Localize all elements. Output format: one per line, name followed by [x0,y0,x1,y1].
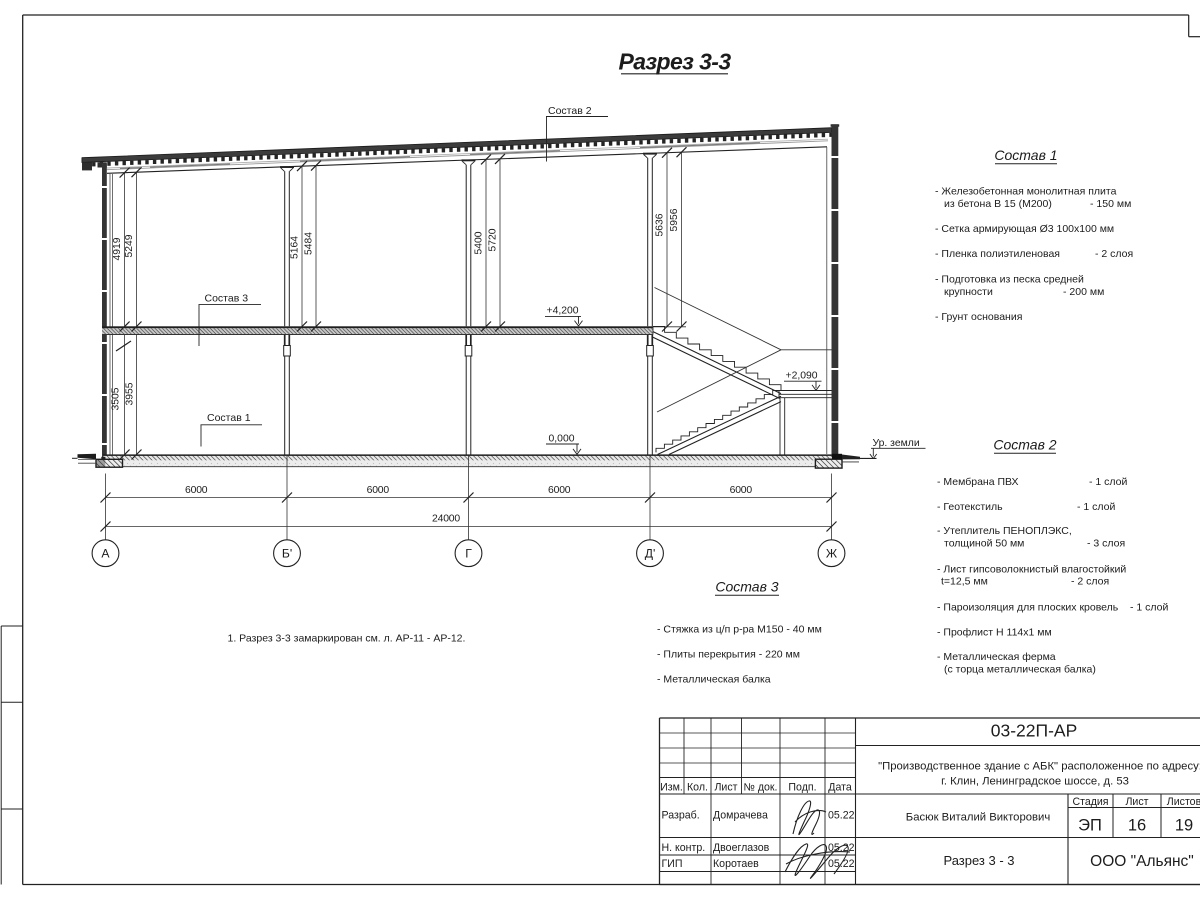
svg-text:Разрез 3 - 3: Разрез 3 - 3 [943,853,1014,868]
svg-text:- Профлист Н 114х1 мм: - Профлист Н 114х1 мм [937,627,1052,639]
svg-text:- Пленка полиэтиленовая: - Пленка полиэтиленовая [935,248,1060,260]
svg-text:+4,200: +4,200 [547,306,579,317]
svg-text:А: А [101,547,110,561]
svg-text:№ док.: № док. [744,782,778,794]
svg-text:- Грунт основания: - Грунт основания [935,311,1022,323]
svg-text:- 1 слой: - 1 слой [1089,476,1128,488]
svg-text:03-22П-АР: 03-22П-АР [991,721,1078,741]
svg-text:- Утеплитель ПЕНОПЛЭКС,: - Утеплитель ПЕНОПЛЭКС, [937,525,1072,537]
svg-text:5400: 5400 [473,231,484,254]
svg-text:Разрез 3-3: Разрез 3-3 [618,49,731,75]
svg-text:t=12,5 мм: t=12,5 мм [941,576,988,588]
svg-text:г. Клин, Ленинградское шоссе,: г. Клин, Ленинградское шоссе, д. 53 [941,776,1129,788]
svg-text:Б': Б' [282,547,292,561]
svg-text:1. Разрез 3-3 замаркирован см.: 1. Разрез 3-3 замаркирован см. л. АР-11 … [228,633,466,645]
svg-text:3505: 3505 [111,387,122,410]
svg-text:Ур. земли: Ур. земли [873,438,920,449]
svg-text:Состав 2: Состав 2 [548,105,592,117]
svg-text:ЭП: ЭП [1078,817,1102,835]
svg-text:Стадия: Стадия [1072,796,1108,808]
svg-text:крупности: крупности [944,286,993,298]
svg-text:- Подготовка из песка средней: - Подготовка из песка средней [935,274,1084,286]
svg-text:16: 16 [1128,817,1146,835]
svg-text:Состав 3: Состав 3 [715,579,778,595]
svg-text:Ж: Ж [826,547,838,561]
svg-text:0,000: 0,000 [549,433,575,444]
svg-text:- Металлическая балка: - Металлическая балка [657,674,771,686]
svg-text:Состав 3: Состав 3 [205,293,249,305]
svg-text:05.22: 05.22 [828,810,855,822]
svg-text:- 150 мм: - 150 мм [1090,198,1131,210]
svg-text:6000: 6000 [367,485,390,496]
svg-text:- 200 мм: - 200 мм [1063,286,1104,298]
svg-text:5720: 5720 [487,228,498,251]
svg-text:- 1 слой: - 1 слой [1077,501,1116,513]
svg-text:- Металлическая ферма: - Металлическая ферма [937,651,1056,663]
svg-text:- Железобетонная монолитная п: - Железобетонная монолитная плита [935,186,1117,198]
svg-text:24000: 24000 [432,514,460,525]
svg-text:Д': Д' [645,547,656,561]
svg-text:6000: 6000 [730,485,753,496]
svg-text:Состав 1: Состав 1 [207,412,251,424]
svg-text:Разраб.: Разраб. [662,810,700,822]
svg-text:Кол.: Кол. [687,782,708,794]
svg-text:Листов: Листов [1167,796,1200,808]
svg-text:6000: 6000 [548,485,571,496]
svg-text:5249: 5249 [124,234,135,257]
svg-text:- Геотекстиль: - Геотекстиль [937,501,1003,513]
svg-text:5636: 5636 [654,213,665,236]
svg-text:19: 19 [1175,817,1193,835]
svg-text:- 1 слой: - 1 слой [1130,602,1169,614]
svg-text:толщиной 50 мм: толщиной 50 мм [944,538,1024,550]
svg-text:3955: 3955 [125,382,136,405]
svg-text:Подп.: Подп. [788,782,816,794]
svg-text:ООО "Альянс": ООО "Альянс" [1090,853,1194,870]
svg-text:Состав 1: Состав 1 [994,147,1057,163]
svg-text:+2,090: +2,090 [786,371,818,382]
svg-text:- Сетка армирующая Ø3 100х100: - Сетка армирующая Ø3 100х100 мм [935,223,1114,235]
svg-text:6000: 6000 [185,485,208,496]
svg-text:Домрачева: Домрачева [713,810,768,822]
svg-text:- Мембрана ПВХ: - Мембрана ПВХ [937,476,1019,488]
svg-text:- 2 слоя: - 2 слоя [1071,576,1109,588]
svg-text:Дата: Дата [828,782,852,794]
svg-text:из бетона В 15 (М200): из бетона В 15 (М200) [944,198,1052,210]
svg-text:Лист: Лист [1125,796,1148,808]
svg-text:5164: 5164 [289,236,300,259]
svg-text:Коротаев: Коротаев [713,858,759,870]
svg-text:- Плиты перекрытия - 220 мм: - Плиты перекрытия - 220 мм [657,649,800,661]
svg-text:Изм.: Изм. [660,782,683,794]
svg-text:"Производственное здание с АБК: "Производственное здание с АБК" располож… [878,761,1200,773]
svg-text:Двоеглазов: Двоеглазов [713,842,770,854]
svg-text:- 3 слоя: - 3 слоя [1087,538,1125,550]
svg-text:4919: 4919 [112,237,123,260]
svg-text:5956: 5956 [669,208,680,231]
svg-text:Н. контр.: Н. контр. [662,842,706,854]
svg-text:5484: 5484 [303,232,314,255]
svg-text:- Пароизоляция для плоских кро: - Пароизоляция для плоских кровель [937,602,1119,614]
svg-text:Лист: Лист [714,782,737,794]
svg-text:- 2 слоя: - 2 слоя [1095,248,1133,260]
svg-text:- Стяжка из ц/п р-ра М150 - 40: - Стяжка из ц/п р-ра М150 - 40 мм [657,624,822,636]
svg-text:- Лист гипсоволокнистый влагос: - Лист гипсоволокнистый влагостойкий [937,564,1126,576]
svg-text:Г: Г [465,547,472,561]
svg-text:Басюк Виталий Викторович: Басюк Виталий Викторович [906,812,1051,824]
svg-text:ГИП: ГИП [662,858,683,870]
svg-text:Состав 2: Состав 2 [993,437,1056,453]
svg-text:(с торца металлическая балка): (с торца металлическая балка) [944,664,1096,676]
